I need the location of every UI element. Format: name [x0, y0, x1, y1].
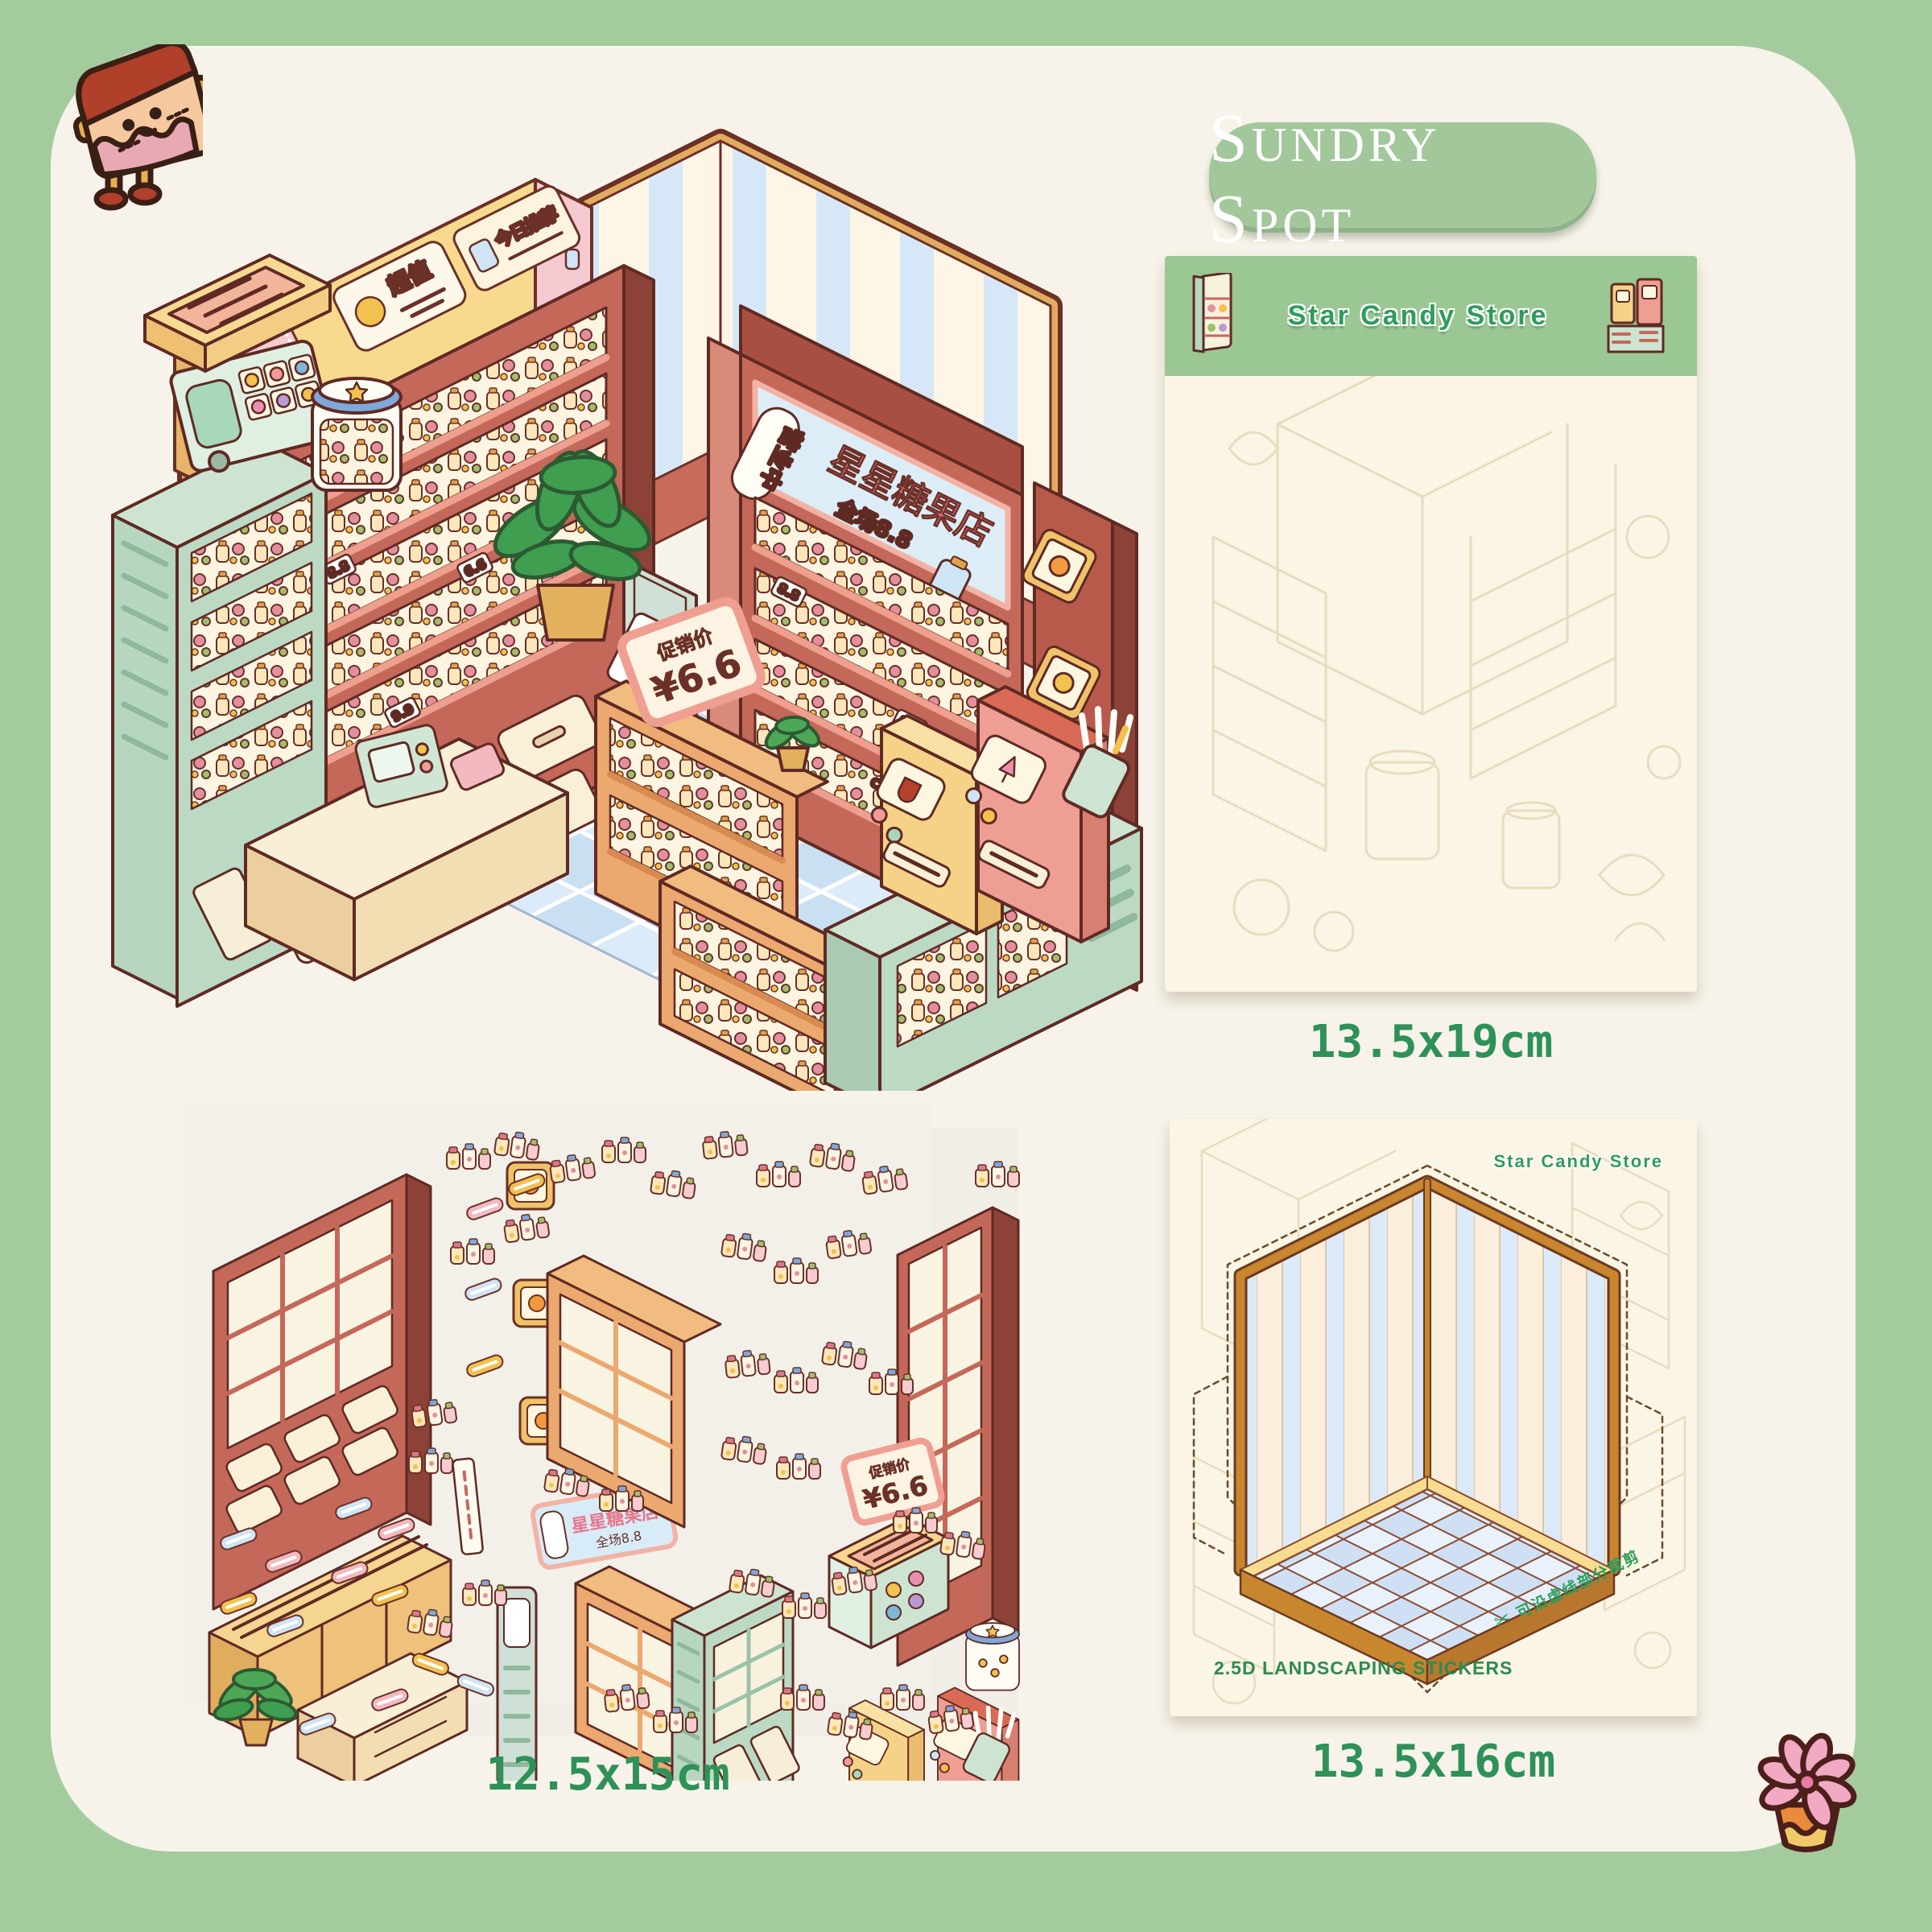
brand-badge-label: Sundry Spot [1209, 97, 1596, 258]
size-caption-top-right: 13.5x19cm [1165, 1016, 1697, 1068]
star-candy-jar [312, 378, 401, 490]
mini-cabinet-icon [1192, 273, 1234, 360]
sticker-sheets-spread: 星星糖果店 全场8.8 [169, 1088, 1042, 1781]
sticker-star-jar [966, 1623, 1019, 1690]
sheet-type-label: 2.5D LANDSCAPING STICKERS [1214, 1657, 1513, 1679]
succulent-flower-mascot [1751, 1731, 1864, 1868]
watermark-pattern [1165, 376, 1697, 992]
size-caption-bottom-left: 12.5x15cm [326, 1748, 890, 1801]
sticker-sheet-cover: Star Candy Store [1165, 256, 1697, 992]
cake-slice-mascot [58, 44, 203, 217]
room-cutout: ✂ 可沿虚线部分裁剪 [1170, 1119, 1697, 1716]
size-caption-bottom-right: 13.5x16cm [1170, 1736, 1697, 1788]
candy-store-illustration: 欢迎光临 超值 今日推荐 [97, 76, 1159, 1091]
room-base-sheet: ✂ 可沿虚线部分裁剪 Star Candy Store 2.5D LANDSCA… [1170, 1119, 1697, 1716]
brand-badge: Sundry Spot [1209, 122, 1596, 233]
sheet-header: Star Candy Store [1165, 256, 1697, 376]
sheet-title: Star Candy Store [1288, 300, 1549, 332]
sheet-brand-label: Star Candy Store [1494, 1151, 1664, 1172]
product-collage: 欢迎光临 超值 今日推荐 [0, 0, 1932, 1932]
mini-machines-icon [1602, 276, 1670, 357]
